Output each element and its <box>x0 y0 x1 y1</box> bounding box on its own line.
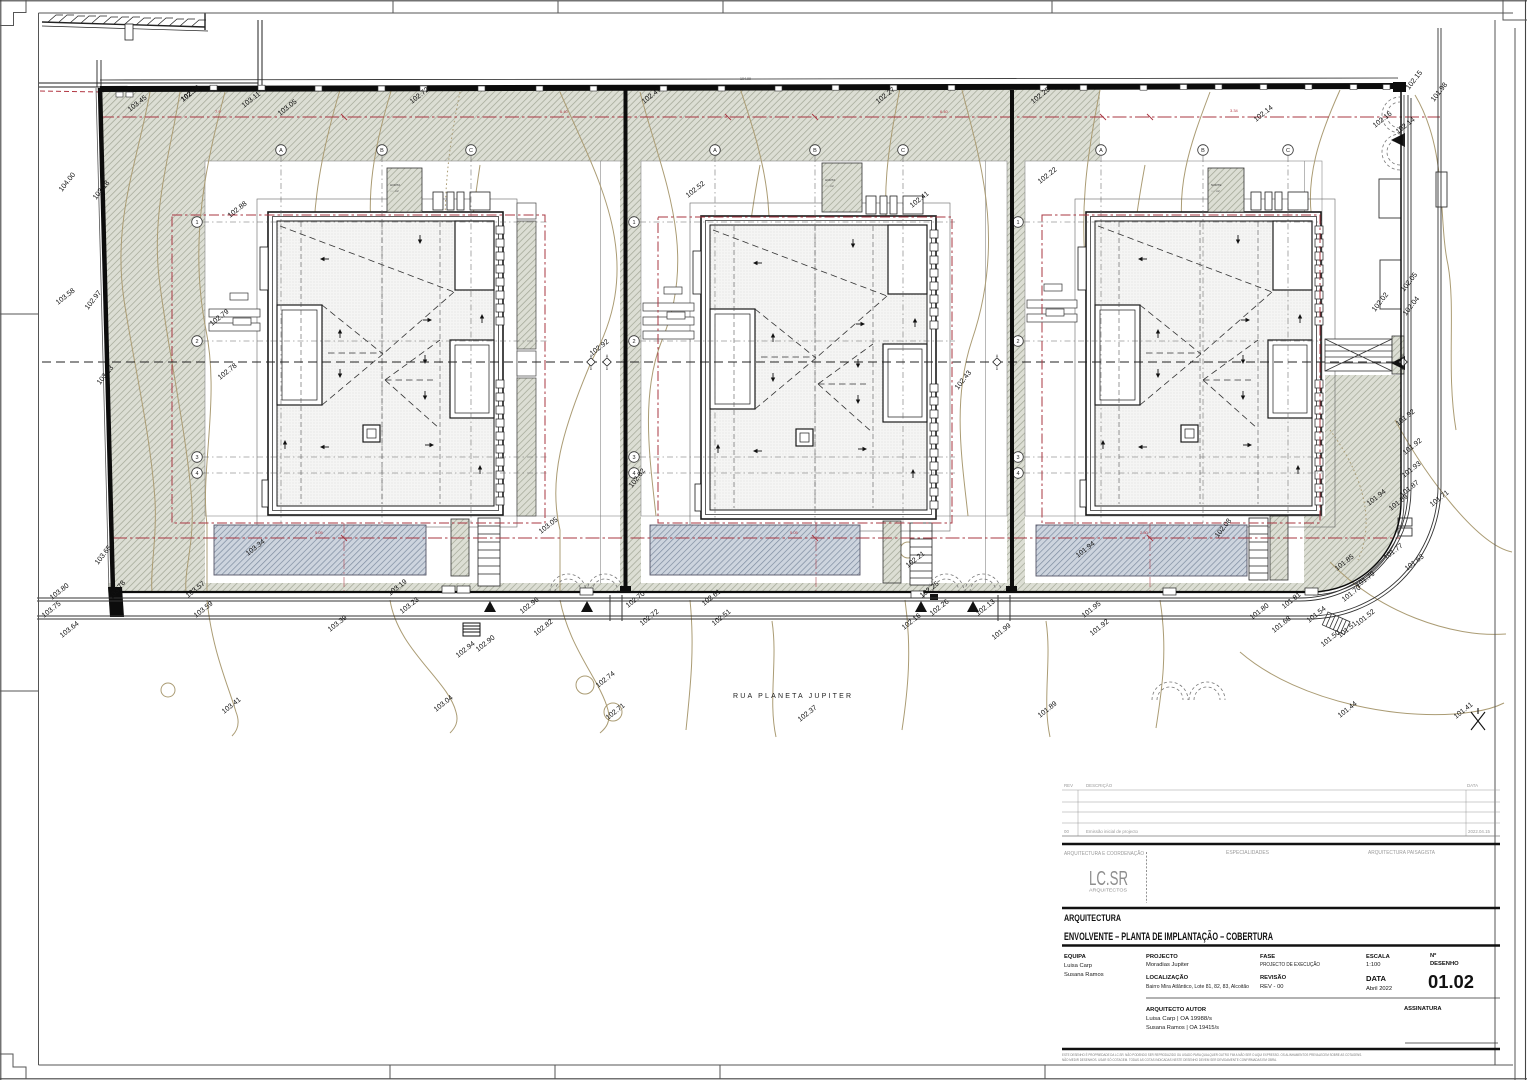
svg-text:ARQUITECTOS: ARQUITECTOS <box>1089 888 1127 893</box>
svg-text:C: C <box>901 148 905 154</box>
svg-text:ASSINATURA: ASSINATURA <box>1404 1006 1442 1012</box>
svg-text:REV - 00: REV - 00 <box>1260 984 1284 990</box>
svg-text:NORTE: NORTE <box>1211 183 1221 187</box>
svg-text:1: 1 <box>1016 220 1019 226</box>
svg-text:ARQUITECTURA: ARQUITECTURA <box>1064 913 1121 923</box>
svg-text:ENVOLVENTE – PLANTA DE IMPLANT: ENVOLVENTE – PLANTA DE IMPLANTAÇÃO – COB… <box>1064 930 1273 943</box>
svg-text:2.80: 2.80 <box>1140 530 1149 535</box>
svg-text:REV: REV <box>1064 783 1073 788</box>
svg-text:4: 4 <box>195 471 198 477</box>
svg-text:Susana Ramos: Susana Ramos <box>1064 972 1104 978</box>
svg-text:HORTA: HORTA <box>825 178 835 182</box>
svg-text:HORTA: HORTA <box>390 183 400 187</box>
svg-text:RUA PLANETA JUPITER: RUA PLANETA JUPITER <box>733 693 853 700</box>
svg-text:01.02: 01.02 <box>1428 971 1474 992</box>
svg-text:Nº: Nº <box>1430 953 1437 959</box>
svg-text:3: 3 <box>195 455 198 461</box>
svg-text:C: C <box>1286 148 1290 154</box>
svg-text:1: 1 <box>195 220 198 226</box>
svg-text:Bairro Mira Atlântico, Lote 81: Bairro Mira Atlântico, Lote 81, 82, 83, … <box>1146 984 1249 990</box>
svg-text:A: A <box>1099 148 1103 154</box>
svg-text:6.40: 6.40 <box>940 109 949 114</box>
svg-text:DESENHO: DESENHO <box>1430 961 1459 967</box>
svg-text:Susana Ramos | OA 19415/s: Susana Ramos | OA 19415/s <box>1146 1025 1219 1031</box>
svg-text:ARQUITECTO AUTOR: ARQUITECTO AUTOR <box>1146 1007 1207 1013</box>
svg-text:Emissão inicial de projecto: Emissão inicial de projecto <box>1086 829 1139 834</box>
svg-text:5.05: 5.05 <box>790 530 799 535</box>
svg-text:Luisa Carp | OA 19988/s: Luisa Carp | OA 19988/s <box>1146 1016 1212 1022</box>
svg-text:B: B <box>813 148 817 154</box>
svg-text:00: 00 <box>1064 829 1069 834</box>
svg-text:DATA: DATA <box>1467 783 1478 788</box>
svg-text:B: B <box>380 148 384 154</box>
svg-text:ESPECIALIDADES: ESPECIALIDADES <box>1226 850 1269 856</box>
svg-text:104.99: 104.99 <box>740 77 751 81</box>
svg-text:ARQUITECTURA PAISAGISTA: ARQUITECTURA PAISAGISTA <box>1368 850 1435 856</box>
svg-text:4: 4 <box>1016 471 1019 477</box>
svg-text:◦◦◦◦ m²: ◦◦◦◦ m² <box>1211 189 1220 193</box>
svg-text:◦◦◦◦ m²: ◦◦◦◦ m² <box>825 184 834 188</box>
svg-text:3.34: 3.34 <box>1230 108 1239 113</box>
svg-text:ESCALA: ESCALA <box>1366 954 1391 960</box>
svg-text:REVISÃO: REVISÃO <box>1260 974 1287 981</box>
svg-text:DATA: DATA <box>1366 974 1386 983</box>
svg-text:2: 2 <box>195 339 198 345</box>
svg-text:3: 3 <box>1016 455 1019 461</box>
svg-text:6.40: 6.40 <box>560 109 569 114</box>
svg-text:2022.04.15: 2022.04.15 <box>1468 829 1491 834</box>
svg-text:DESCRIÇÃO: DESCRIÇÃO <box>1086 783 1113 788</box>
svg-text:NÃO MEDIR DESENHOS. USAR SÓ CO: NÃO MEDIR DESENHOS. USAR SÓ COTAGEM. TOD… <box>1062 1057 1277 1062</box>
svg-text:7.9: 7.9 <box>215 109 221 114</box>
svg-text:1: 1 <box>632 220 635 226</box>
svg-text:EQUIPA: EQUIPA <box>1064 954 1087 960</box>
svg-text:◦◦◦◦ m²: ◦◦◦◦ m² <box>390 189 399 193</box>
svg-text:3: 3 <box>632 455 635 461</box>
svg-text:LOCALIZAÇÃO: LOCALIZAÇÃO <box>1146 974 1189 981</box>
svg-text:FASE: FASE <box>1260 954 1275 960</box>
svg-text:B: B <box>1201 148 1205 154</box>
svg-text:PROJECTO DE EXECUÇÃO: PROJECTO DE EXECUÇÃO <box>1260 961 1320 968</box>
svg-text:Abril 2022: Abril 2022 <box>1366 986 1392 992</box>
svg-text:ARQUITECTURA E COORDENAÇÃO: ARQUITECTURA E COORDENAÇÃO <box>1064 850 1145 857</box>
svg-text:2: 2 <box>632 339 635 345</box>
svg-text:Moradias Jupiter: Moradias Jupiter <box>1146 962 1189 968</box>
svg-text:A: A <box>279 148 283 154</box>
svg-text:2: 2 <box>1016 339 1019 345</box>
svg-text:Luisa Carp: Luisa Carp <box>1064 963 1092 969</box>
svg-text:ESTE DESENHO É PROPRIEDADE DA: ESTE DESENHO É PROPRIEDADE DA LC.SR. NÃO… <box>1062 1052 1362 1057</box>
svg-text:C: C <box>469 148 473 154</box>
svg-text:1:100: 1:100 <box>1366 962 1381 968</box>
svg-text:PROJECTO: PROJECTO <box>1146 954 1178 960</box>
svg-text:A: A <box>713 148 717 154</box>
svg-text:5.05: 5.05 <box>315 530 324 535</box>
